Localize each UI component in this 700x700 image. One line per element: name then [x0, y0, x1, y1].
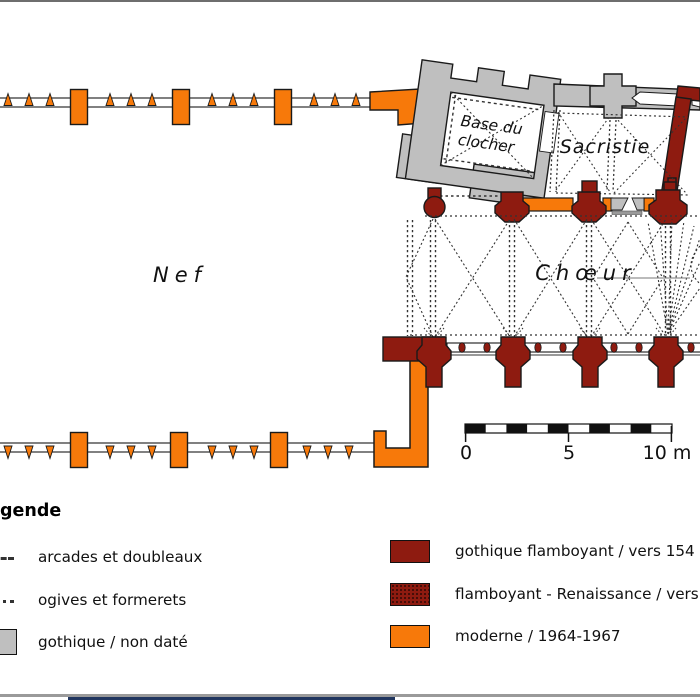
- modern-connector-south: [374, 358, 428, 467]
- nave-north-wall: [0, 89, 424, 125]
- legend-item-moderne: moderne / 1964-1967: [455, 627, 621, 645]
- legend-item-flamboyant: gothique flamboyant / vers 154: [455, 542, 695, 560]
- legend-item-renaissance: flamboyant - Renaissance / vers: [455, 585, 699, 603]
- nave-label: Nef: [153, 263, 207, 287]
- legend-item-ogives: ogives et formerets: [38, 591, 186, 609]
- sacristy-label: Sacristie: [560, 136, 651, 158]
- doorway-jamb-left: [611, 198, 628, 210]
- orange-box-symbol: [390, 625, 430, 648]
- modern-wall-segment-1: [523, 198, 573, 211]
- scale-tick-5: 5: [563, 442, 575, 464]
- scale-tick-0: 0: [460, 442, 472, 464]
- doorway-threshold: [612, 211, 642, 215]
- choir-label: Chœur: [535, 261, 637, 285]
- floor-plan-drawing: Base du clocher: [0, 0, 700, 480]
- dark-red-stippled-box-symbol: [390, 583, 430, 606]
- gray-box-symbol: [0, 629, 17, 655]
- frame-border-top: [0, 0, 700, 2]
- tower-base: Base du clocher: [395, 59, 564, 209]
- dashed-line-symbol: [0, 557, 14, 560]
- legend-item-arcades: arcades et doubleaux: [38, 548, 202, 566]
- church-floor-plan-page: Base du clocher: [0, 0, 700, 700]
- dark-red-box-symbol: [390, 540, 430, 563]
- choir-south-wall: [383, 337, 700, 387]
- legend-title: gende: [0, 501, 61, 521]
- nave-south-wall: [0, 433, 376, 468]
- scale-bar: 0 5 10 m: [460, 424, 691, 464]
- sacristy-north-buttress: [590, 74, 636, 118]
- scale-tick-10: 10 m: [643, 442, 692, 464]
- dotted-line-symbol: [0, 600, 14, 603]
- legend-item-gothique: gothique / non daté: [38, 633, 188, 651]
- doorway-jamb-right: [632, 198, 644, 210]
